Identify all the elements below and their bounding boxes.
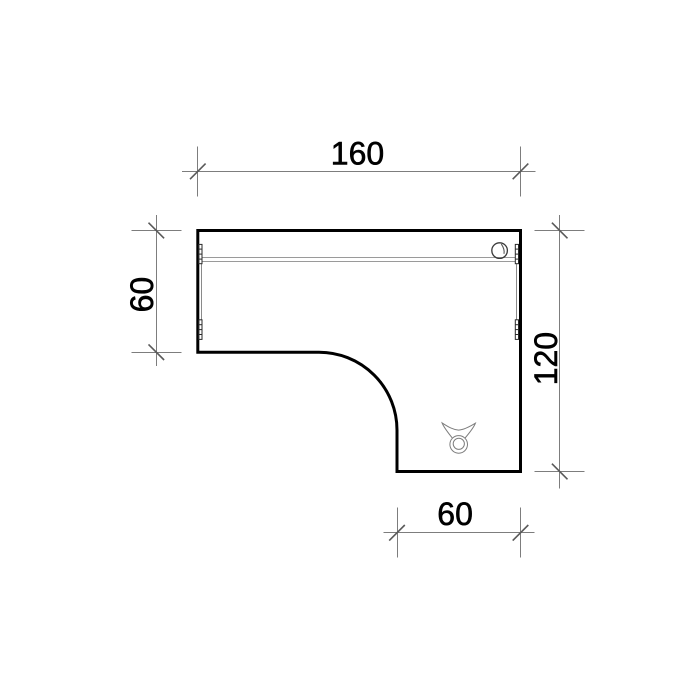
svg-text:60: 60 [437, 496, 473, 532]
svg-text:160: 160 [331, 136, 384, 172]
svg-text:60: 60 [124, 277, 160, 313]
svg-text:120: 120 [528, 332, 564, 385]
